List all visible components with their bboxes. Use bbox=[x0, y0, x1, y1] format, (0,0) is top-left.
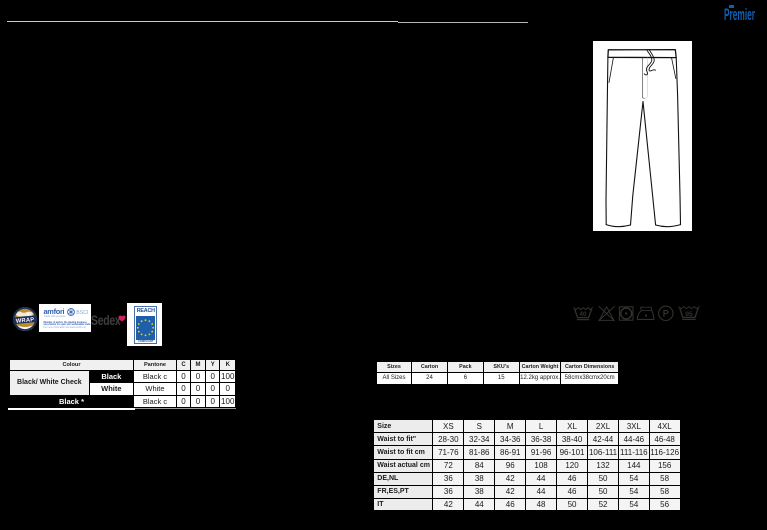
svg-text:40: 40 bbox=[579, 311, 587, 318]
svg-text:95: 95 bbox=[685, 311, 693, 318]
svg-text:P: P bbox=[663, 309, 669, 319]
